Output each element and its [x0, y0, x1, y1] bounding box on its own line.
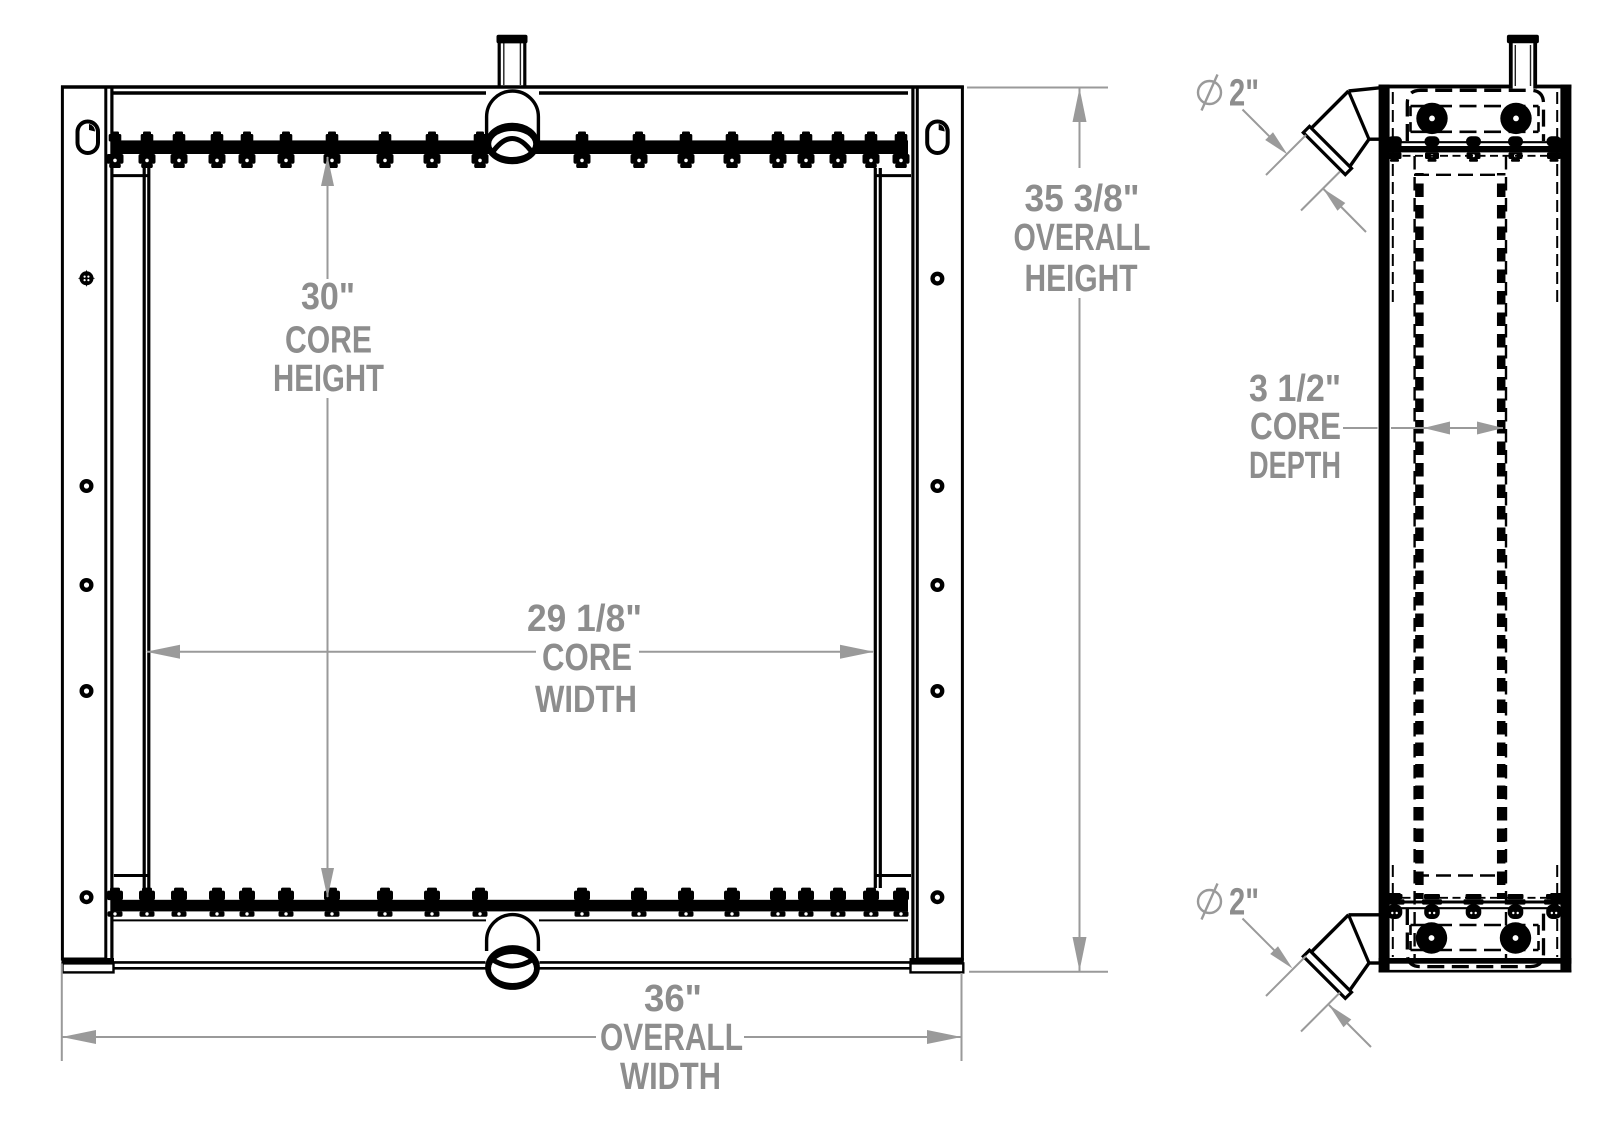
svg-text:35 3/8": 35 3/8": [1025, 178, 1140, 220]
svg-text:WIDTH: WIDTH: [535, 679, 637, 721]
svg-text:CORE: CORE: [285, 319, 372, 361]
svg-text:30": 30": [301, 276, 355, 318]
svg-text:DEPTH: DEPTH: [1249, 445, 1341, 487]
svg-text:2": 2": [1229, 882, 1259, 924]
svg-text:HEIGHT: HEIGHT: [1025, 258, 1138, 300]
svg-text:OVERALL: OVERALL: [1014, 217, 1151, 259]
svg-text:3 1/2": 3 1/2": [1249, 368, 1341, 410]
svg-text:2": 2": [1229, 73, 1259, 115]
svg-text:OVERALL: OVERALL: [600, 1017, 743, 1059]
svg-text:CORE: CORE: [1250, 406, 1341, 448]
svg-text:WIDTH: WIDTH: [620, 1056, 721, 1098]
svg-text:CORE: CORE: [542, 637, 632, 679]
svg-text:36": 36": [644, 978, 702, 1020]
svg-text:HEIGHT: HEIGHT: [273, 358, 384, 400]
svg-text:29 1/8": 29 1/8": [527, 598, 642, 640]
